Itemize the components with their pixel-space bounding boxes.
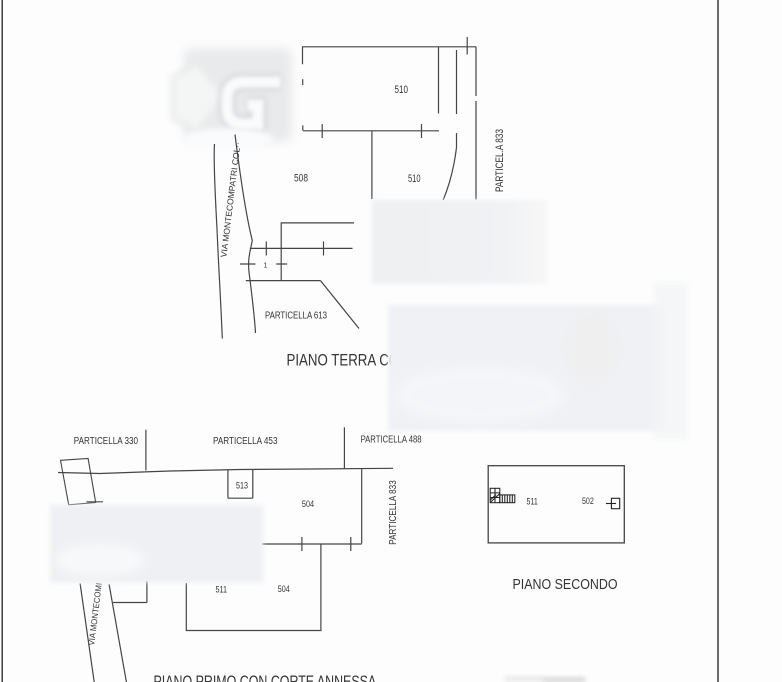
svg-text:PARTICELLA 488: PARTICELLA 488 (361, 435, 422, 446)
svg-text:PIANO PRIMO CON CORTE ANNESSA: PIANO PRIMO CON CORTE ANNESSA (154, 673, 377, 682)
svg-text:510: 510 (408, 173, 421, 185)
svg-text:PARTICELLA 613: PARTICELLA 613 (265, 311, 327, 322)
svg-text:PARTICELLA 833: PARTICELLA 833 (388, 480, 399, 545)
svg-text:PARTICELLA 453: PARTICELLA 453 (213, 436, 278, 447)
svg-text:504: 504 (302, 499, 314, 510)
svg-text:508: 508 (294, 173, 308, 185)
svg-text:511: 511 (527, 497, 538, 508)
svg-text:511: 511 (216, 585, 228, 596)
svg-text:PARTICELLA 330: PARTICELLA 330 (74, 436, 139, 447)
svg-text:PARTICEL.A 833: PARTICEL.A 833 (494, 129, 506, 192)
svg-text:1: 1 (264, 263, 268, 270)
svg-text:510: 510 (395, 84, 409, 96)
svg-text:513: 513 (236, 481, 248, 492)
svg-text:502: 502 (582, 496, 594, 507)
svg-text:PIANO SECONDO: PIANO SECONDO (513, 577, 618, 593)
svg-text:504: 504 (278, 584, 290, 595)
